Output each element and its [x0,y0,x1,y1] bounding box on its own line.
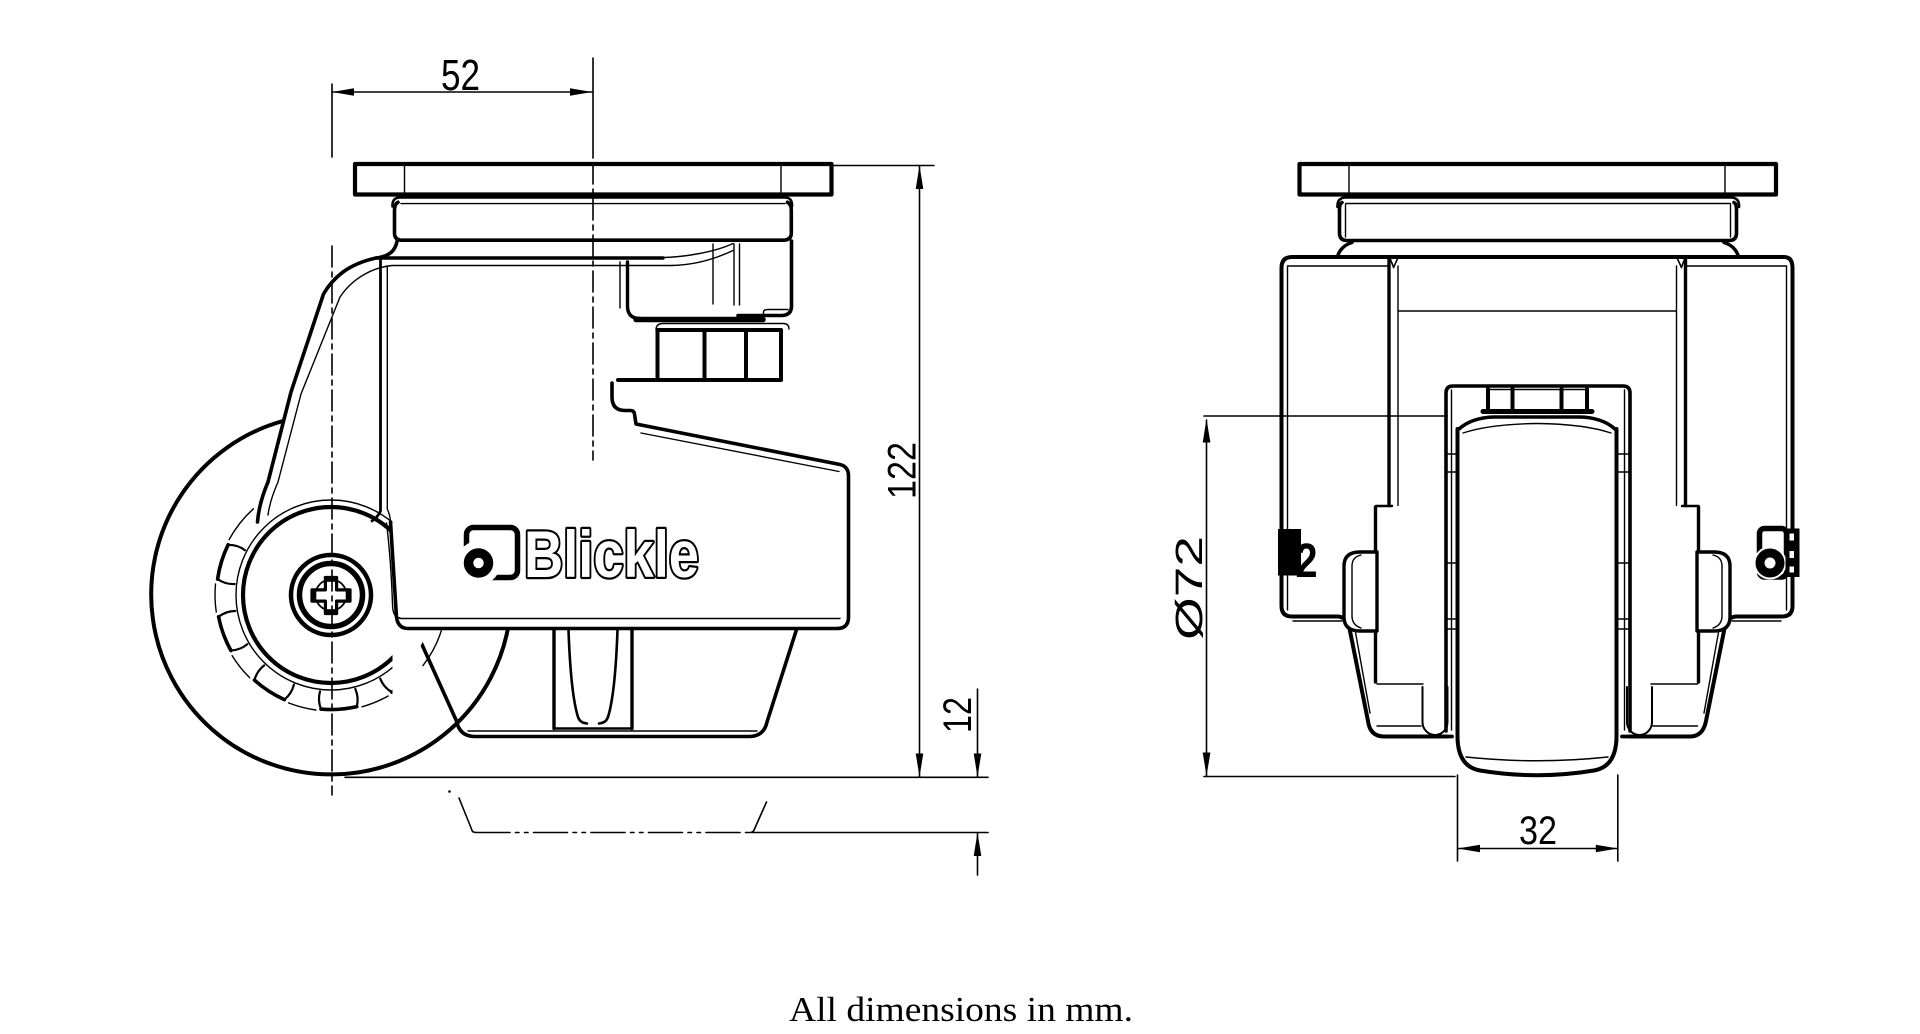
svg-text:Blickle: Blickle [524,517,699,591]
svg-text:32: 32 [1519,809,1557,853]
svg-text:2: 2 [1296,535,1318,588]
svg-text:52: 52 [441,51,480,100]
svg-text:All dimensions in mm.: All dimensions in mm. [789,990,1133,1029]
svg-text:12: 12 [936,697,980,733]
svg-text:122: 122 [881,442,925,499]
svg-text:Ø72: Ø72 [1169,536,1211,640]
